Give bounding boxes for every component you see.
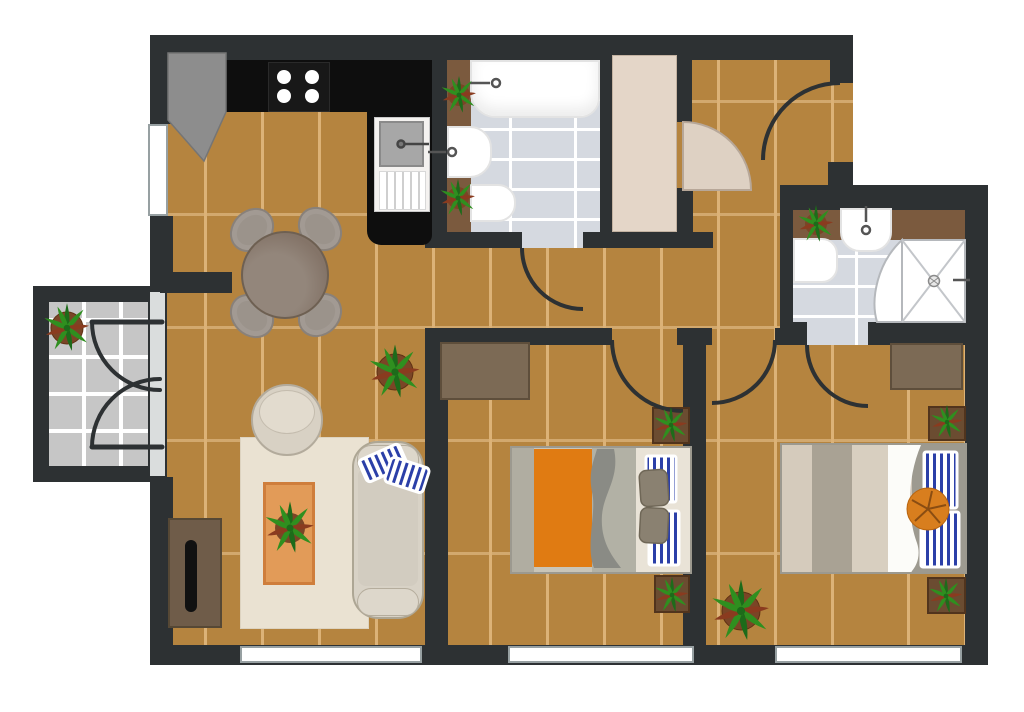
bedroom2-dresser <box>890 343 963 390</box>
living-room-window <box>240 646 422 663</box>
balcony-floor <box>49 302 150 466</box>
sofa-cushion-top <box>357 445 419 475</box>
wall-closet-right-lower <box>677 188 693 248</box>
bedroom2-nightstand-bottom <box>927 577 966 614</box>
bedroom1-bed <box>510 446 692 574</box>
coffee-table <box>263 482 315 585</box>
bedroom1-window <box>508 646 694 663</box>
bed2-headboard <box>912 445 965 572</box>
balcony-wall-left <box>33 286 49 482</box>
hall-closet <box>612 55 677 232</box>
wall-bathroom-right <box>600 35 612 248</box>
ensuite-sink <box>840 208 892 252</box>
bedroom2-bed <box>780 443 967 574</box>
bathroom-sink <box>447 126 492 178</box>
dining-table <box>241 231 329 319</box>
stove <box>268 62 330 112</box>
bedroom1-dresser <box>440 342 530 400</box>
wall-right <box>965 185 988 665</box>
kitchen-sink-basin <box>379 121 424 167</box>
ensuite-toilet <box>793 238 838 283</box>
bedroom1-nightstand-top <box>652 407 690 444</box>
wall-top <box>150 35 853 60</box>
bed2-sheet-left <box>782 445 812 572</box>
bed1-mattress-edge <box>512 448 534 572</box>
wall-left-upper <box>150 60 173 124</box>
wall-stub-balcony <box>160 272 232 293</box>
bed2-blanket-taupe <box>812 445 852 572</box>
tv <box>185 540 197 612</box>
bedroom1-nightstand-bottom <box>654 575 690 613</box>
wall-bedrooms-top-c <box>775 328 807 345</box>
bed1-orange-blanket <box>534 449 592 567</box>
kitchen-window <box>148 124 168 216</box>
bathtub <box>470 60 600 118</box>
bed1-blanket-mid <box>592 448 636 572</box>
kitchen-drying-rack <box>379 171 426 210</box>
balcony-wall-top <box>33 286 152 302</box>
bathroom-toilet <box>470 184 516 222</box>
balcony-door-threshold <box>148 290 167 478</box>
sofa-seat <box>358 468 418 586</box>
bed1-sheet <box>636 448 690 572</box>
bed2-sheet-mid <box>852 445 892 572</box>
bedroom2-nightstand-top <box>928 406 966 441</box>
armchair-cushion <box>259 390 315 434</box>
wall-closet-right-upper <box>677 55 692 122</box>
wall-bedrooms-top-b <box>677 328 712 345</box>
wall-bathroom-bottom-right <box>583 232 713 248</box>
bedroom2-window <box>775 646 962 663</box>
balcony-wall-bottom <box>33 466 152 482</box>
sofa-cushion-bottom <box>357 588 419 616</box>
wall-entry-upper <box>830 35 853 83</box>
wall-bathroom-bottom-left <box>425 232 522 248</box>
floor-plan <box>0 0 1024 712</box>
wall-ensuite-bottom-right <box>868 322 988 345</box>
wall-ensuite-top <box>780 185 988 210</box>
